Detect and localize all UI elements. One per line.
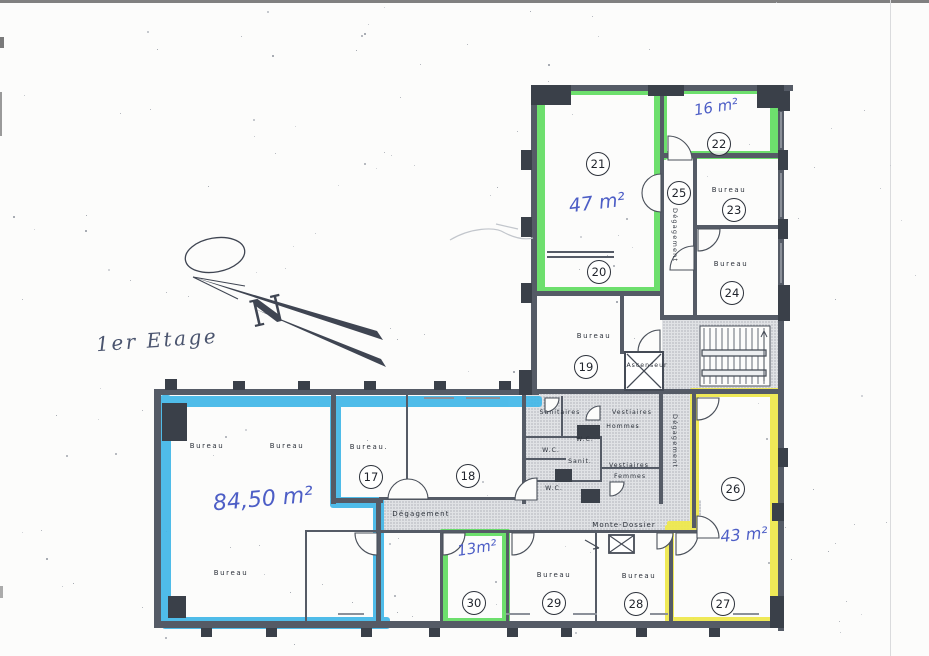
monte-dossier-label: Monte-Dossier (592, 522, 655, 529)
room-tag-24: 24 (720, 281, 744, 305)
hommes-label: Hommes (606, 424, 640, 430)
degagement-label-main-corridor: Dégagement (392, 511, 450, 518)
pencil-scribbles (450, 224, 533, 240)
wc-label-2: W.C. (542, 448, 560, 454)
sanit-label: Sanit. (568, 459, 592, 465)
bureau-label-room29: Bureau (537, 572, 572, 579)
compass-letter: N (246, 286, 289, 336)
bureau-label-room19: Bureau (577, 333, 612, 340)
vestiaires-femmes-label: Vestiaires (609, 463, 649, 469)
elevator-box (625, 352, 663, 390)
area-annotation-blue-room: 84,50 m² (212, 483, 314, 517)
bureau-label-blue-room-left: Bureau (190, 443, 225, 450)
scan-left-mark-2 (0, 92, 2, 136)
wc-label-3: W.C. (545, 486, 563, 492)
room-tag-22: 22 (707, 132, 731, 156)
area-annotation-rooms26-27: 43 m² (720, 523, 769, 546)
bureau-label-blue-room-right: Bureau (270, 443, 305, 450)
room-tag-28: 28 (624, 592, 648, 616)
scan-top-edge (0, 0, 929, 3)
floor-plan-scan: N Bureau Bureau Bureau Bureau Bureau Bur… (0, 0, 929, 656)
room-tag-19: 19 (574, 355, 598, 379)
floor-label: 1er Etage (95, 324, 219, 356)
bureau-label-room24: Bureau (714, 261, 749, 268)
room-tag-27: 27 (711, 592, 735, 616)
vestiaires-hommes-label: Vestiaires (612, 410, 652, 416)
room-tag-21: 21 (586, 152, 610, 176)
room-tag-18: 18 (456, 464, 480, 488)
scan-left-mark-3 (0, 586, 3, 598)
sanitaires-label: Sanitaires (540, 410, 581, 416)
degagement-label-upper-corridor: Dégagement (671, 208, 679, 262)
degagement-label-right-corridor: Dégagement (671, 414, 679, 468)
bureau-label-room23: Bureau (712, 187, 747, 194)
stairs (700, 326, 770, 386)
area-annotation-room30: 13m² (456, 536, 498, 560)
dumbwaiter-box (585, 535, 634, 553)
room-tag-25: 25 (667, 181, 691, 205)
room-tag-20: 20 (587, 260, 611, 284)
area-annotation-room22: 16 m² (693, 95, 740, 120)
room-tag-23: 23 (722, 198, 746, 222)
room-tag-17: 17 (359, 465, 383, 489)
door-arcs (355, 136, 720, 555)
bureau-label-room28: Bureau (622, 573, 657, 580)
wc-label-1: W.C. (576, 437, 594, 443)
ascenseur-label: Ascenseur (626, 363, 667, 369)
room-tag-29: 29 (542, 591, 566, 615)
hatched-floor-areas (379, 317, 784, 533)
room-tag-30: 30 (462, 591, 486, 615)
area-annotation-room21: 47 m² (568, 189, 627, 218)
bureau-label-room17: Bureau. (350, 444, 388, 451)
femmes-label: Femmes (614, 474, 646, 480)
room-tag-26: 26 (721, 477, 745, 501)
bureau-label-blue-room-bottom: Bureau (214, 570, 249, 577)
scan-right-line (890, 0, 891, 656)
scan-left-mark-1 (0, 37, 4, 48)
